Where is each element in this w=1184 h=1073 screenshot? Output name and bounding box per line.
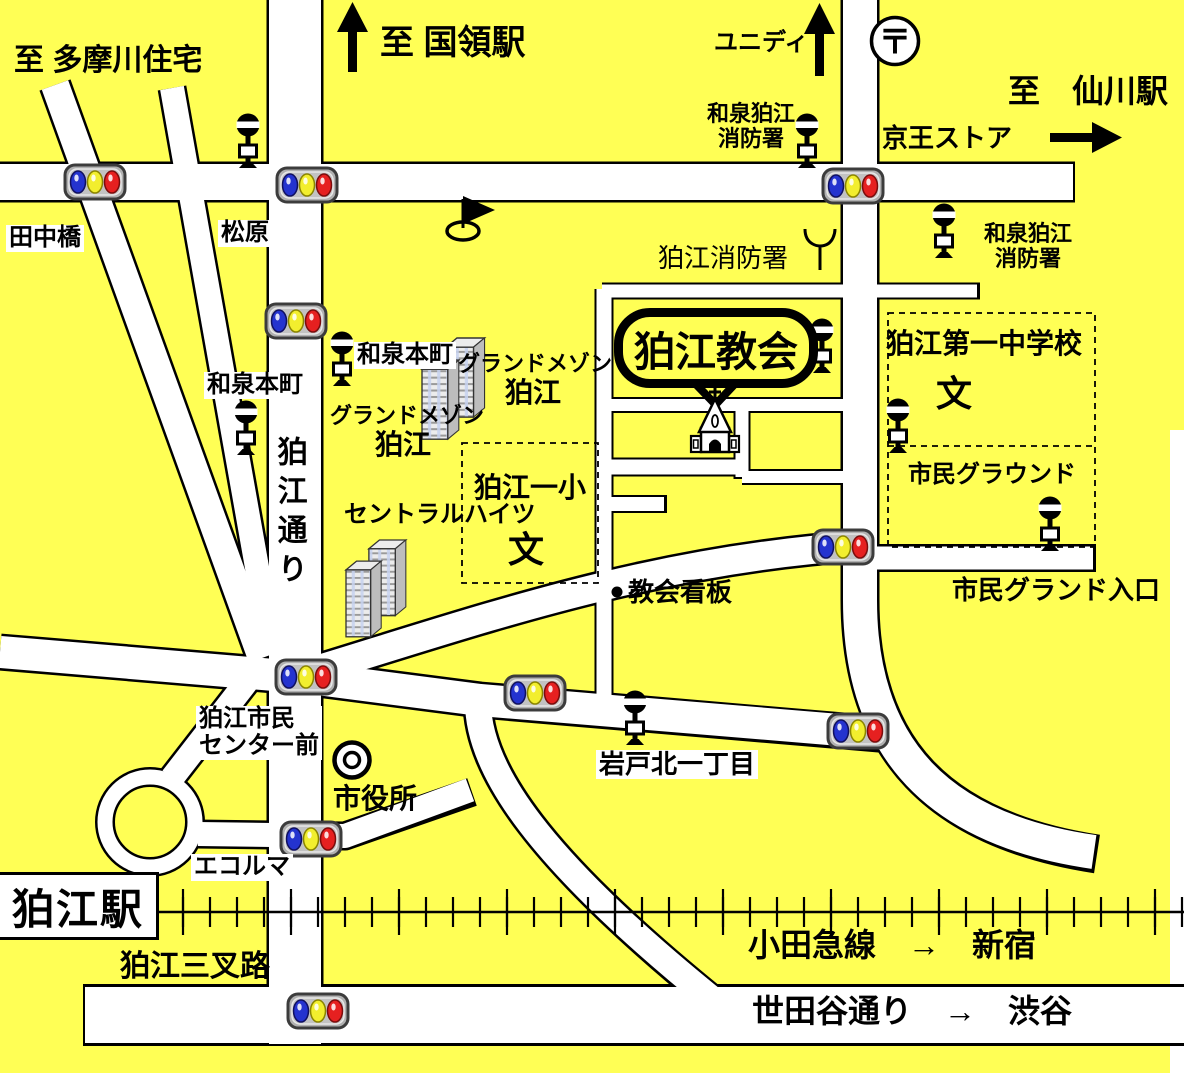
komae-dori-label: 狛江通り	[272, 436, 306, 592]
post-mark: 〒	[879, 23, 912, 60]
map-canvas: 〒	[0, 0, 1184, 1073]
grand-maison-label: グランドメゾン 狛江	[458, 352, 608, 408]
izumi-fire-east-label: 和泉狛江 消防署	[973, 222, 1083, 271]
post-office-icon: 〒	[872, 18, 919, 65]
dest-kokuryo: 至 国領駅	[380, 24, 525, 62]
traffic-light-icon	[276, 660, 336, 694]
setagaya-dori-label: 世田谷通り → 渋谷	[752, 994, 1072, 1030]
ecorma-label: エコルマ	[191, 854, 293, 881]
school-mark: 文	[936, 374, 972, 414]
dest-tamagawa: 至 多摩川住宅	[14, 44, 202, 78]
citizens-ground-label: 市民グラウンド	[908, 462, 1076, 489]
izumi-honcho-label: 和泉本町	[204, 372, 306, 399]
komae-fire-label: 狛江消防署	[658, 244, 788, 273]
keio-store-label: 京王ストア	[882, 124, 1012, 153]
komae-church-access-map: 〒 至 多摩川住宅 至 国領駅 ユニディ 至 仙川駅 京王ストア 和泉狛江 消防…	[0, 0, 1184, 1073]
central-heights-label: セントラルハイツ	[344, 502, 536, 529]
izumi-honcho-label: 和泉本町	[354, 342, 456, 369]
unidy-label: ユニディ	[714, 30, 808, 57]
citizens-ground-entrance-label: 市民グランド入口	[952, 576, 1160, 605]
traffic-light-icon	[828, 714, 888, 748]
iwado-kita-label: 岩戸北一丁目	[596, 750, 758, 779]
traffic-light-icon	[65, 165, 125, 199]
komae-station-label: 狛江駅	[12, 876, 144, 937]
komae-church-bubble: 狛江教会	[614, 308, 818, 388]
traffic-light-icon	[813, 530, 873, 564]
traffic-light-icon	[505, 676, 565, 710]
traffic-light-icon	[277, 168, 337, 202]
church-sign-label: 教会看板	[628, 578, 732, 607]
traffic-light-icon	[288, 994, 348, 1028]
grand-maison-label: グランドメゾン 狛江	[330, 404, 476, 460]
odakyu-line-label: 小田急線 → 新宿	[748, 928, 1036, 964]
komae-sansaro-label: 狛江三叉路	[120, 950, 270, 984]
church-sign-dot-icon	[612, 587, 623, 598]
page-margin	[1170, 430, 1184, 1073]
civic-center-label: 狛江市民 センター前	[196, 706, 322, 760]
city-hall-icon	[335, 743, 370, 778]
izumi-fire-north-label: 和泉狛江 消防署	[698, 102, 804, 151]
komae-elementary-label: 狛江一小	[474, 472, 586, 503]
city-hall-label: 市役所	[333, 783, 417, 814]
school-mark: 文	[508, 530, 544, 570]
dest-sengawa: 至 仙川駅	[1008, 74, 1168, 110]
matsubara-label: 松原	[218, 220, 272, 247]
traffic-light-icon	[281, 822, 341, 856]
komae-church-label: 狛江教会	[634, 318, 798, 378]
traffic-light-icon	[266, 304, 326, 338]
komae-first-jhs-label: 狛江第一中学校	[886, 328, 1082, 359]
tanaka-bridge-label: 田中橋	[6, 225, 84, 252]
komae-station-box: 狛江駅	[0, 872, 159, 940]
traffic-light-icon	[823, 169, 883, 203]
